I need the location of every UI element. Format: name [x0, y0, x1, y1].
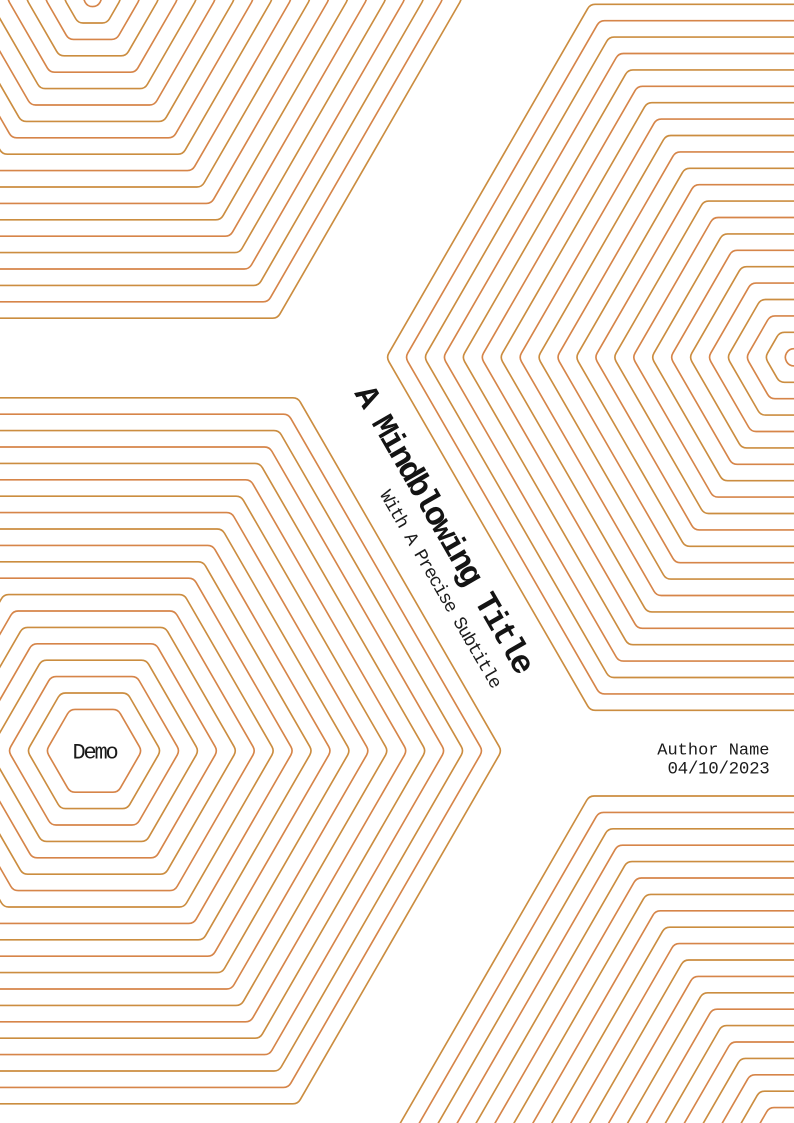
svg-text:04/10/2023: 04/10/2023 — [667, 759, 769, 779]
svg-text:Author Name: Author Name — [657, 742, 769, 761]
svg-text:Demo: Demo — [72, 741, 117, 766]
